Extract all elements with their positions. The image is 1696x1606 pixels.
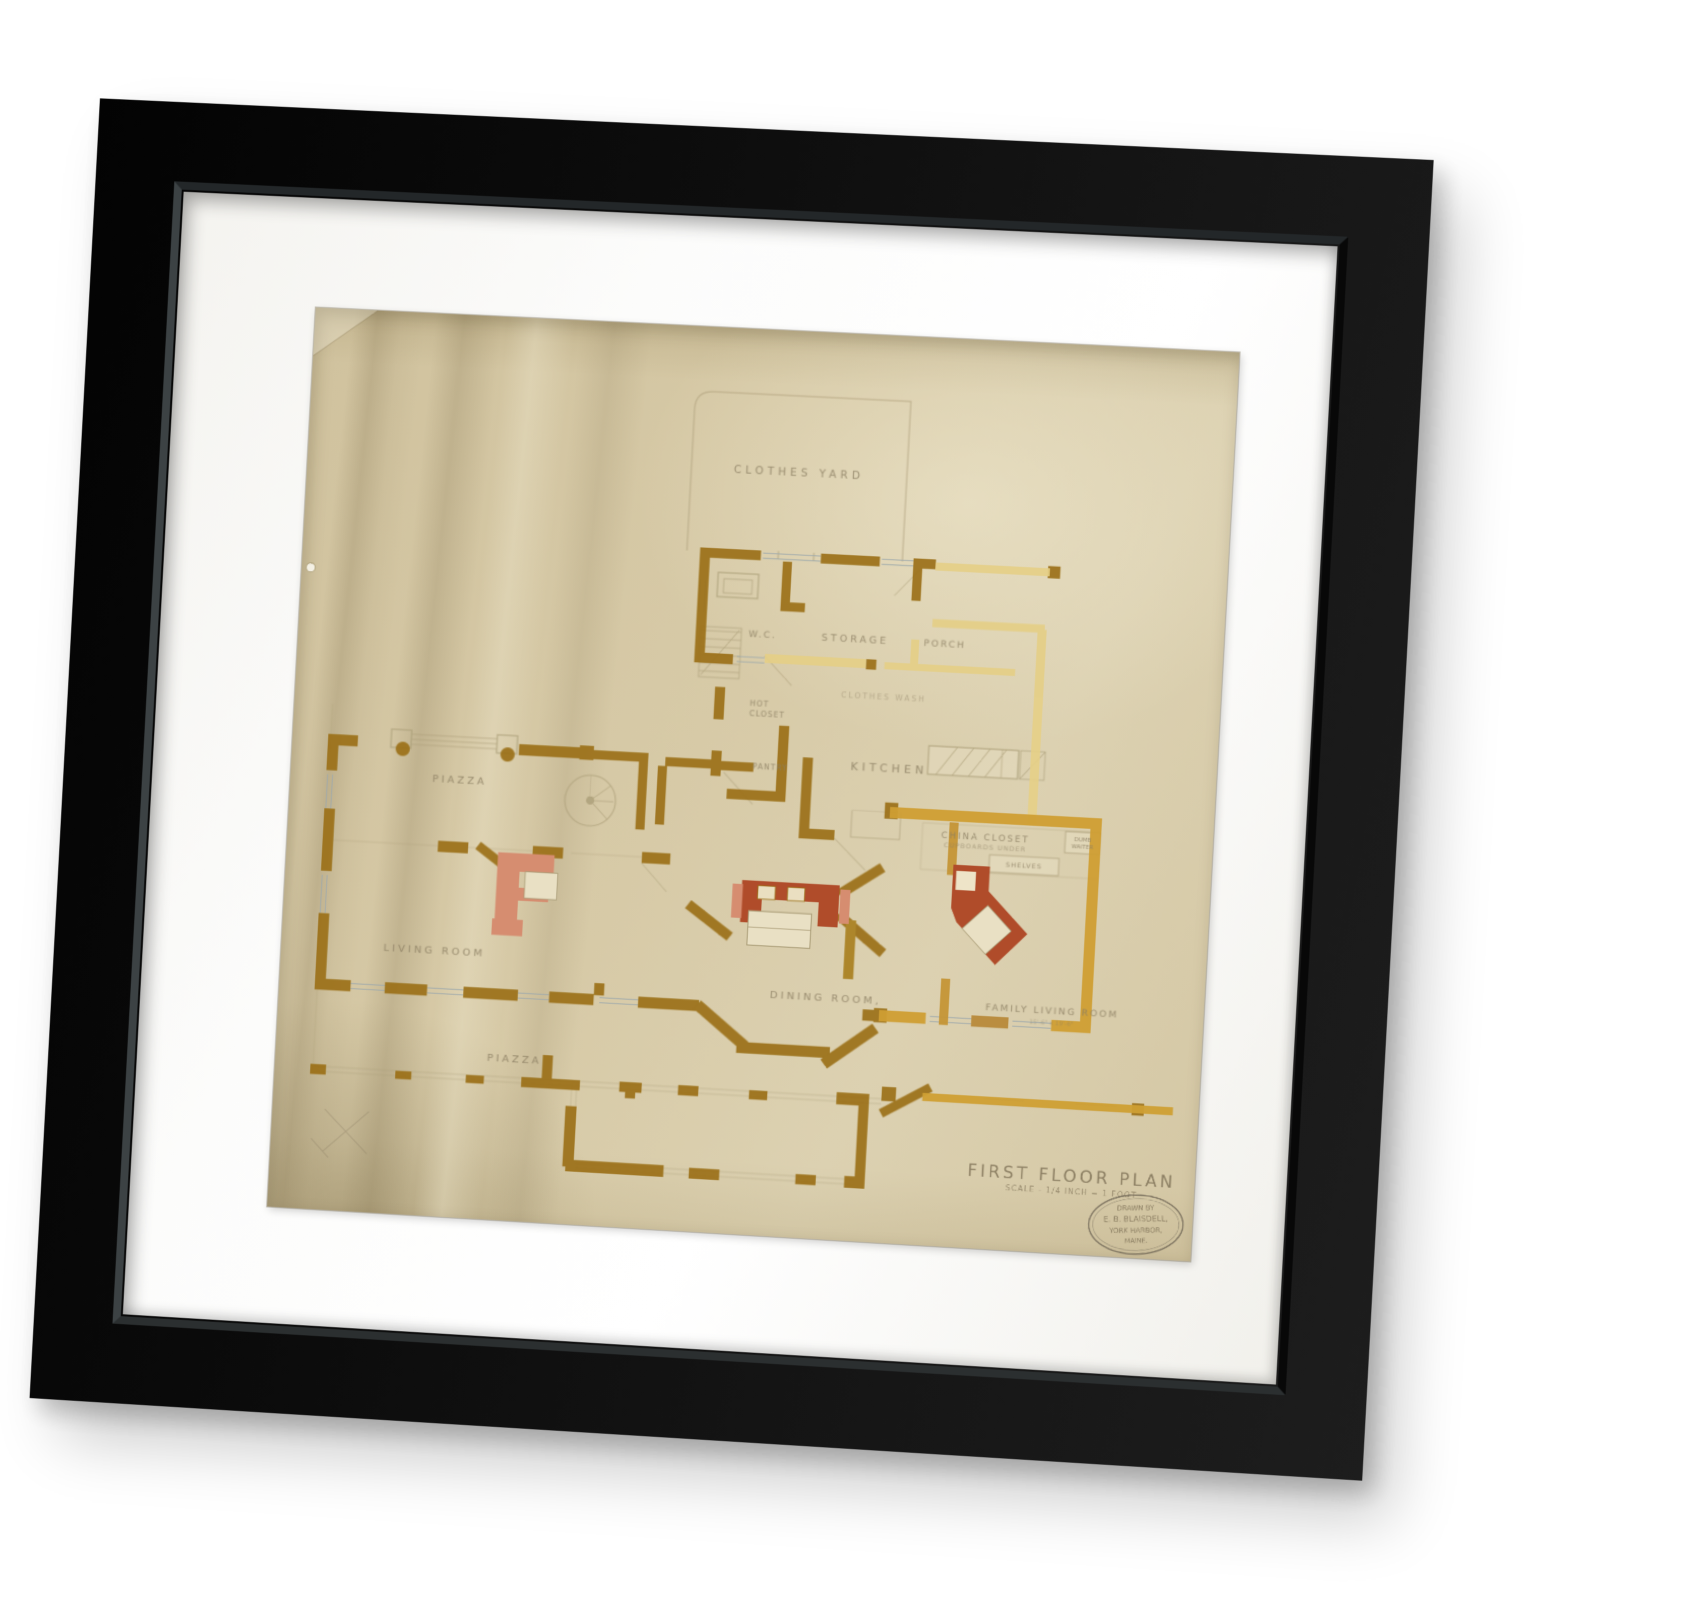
wc-fixture xyxy=(717,572,759,598)
label-wc: W.C. xyxy=(748,630,777,641)
label-piazza-bottom: PIAZZA xyxy=(487,1053,542,1067)
pencil-x-mark xyxy=(310,1108,369,1160)
label-clothes-yard: CLOTHES YARD xyxy=(734,464,865,483)
label-dumb-waiter-2: WAITER xyxy=(1071,844,1093,851)
mat-board: CLOTHES YARD W.C. STORAGE PORCH CLOTHES … xyxy=(123,192,1338,1385)
label-porch: PORCH xyxy=(923,639,966,651)
pin-hole xyxy=(306,563,316,573)
walls-pale-yellow xyxy=(756,554,1050,825)
label-piazza-left: PIAZZA xyxy=(432,774,487,788)
architect-stamp: DRAWN BY E. B. BLAISDELL, YORK HARBOR, M… xyxy=(1088,1195,1183,1255)
label-storage: STORAGE xyxy=(821,633,889,648)
piazza-rails xyxy=(411,734,497,749)
piazza-column xyxy=(500,747,515,762)
stamp-line-3: YORK HARBOR, xyxy=(1108,1226,1162,1235)
stamp-line-4: MAINE. xyxy=(1124,1237,1147,1245)
label-living-room: LIVING ROOM xyxy=(383,943,485,960)
floor-plan-drawing: CLOTHES YARD W.C. STORAGE PORCH CLOTHES … xyxy=(267,308,1239,1262)
label-clothes-wash: CLOTHES WASH xyxy=(841,690,927,704)
label-dining-room: DINING ROOM, xyxy=(769,990,881,1007)
floor-plan-svg: CLOTHES YARD W.C. STORAGE PORCH CLOTHES … xyxy=(267,308,1239,1262)
range-box xyxy=(928,746,1019,779)
piazza-column xyxy=(395,741,410,756)
picture-frame: CLOTHES YARD W.C. STORAGE PORCH CLOTHES … xyxy=(30,98,1434,1480)
label-dumb-waiter-1: DUMB xyxy=(1074,837,1092,844)
thin-outlines xyxy=(305,374,1123,1198)
product-photo: CLOTHES YARD W.C. STORAGE PORCH CLOTHES … xyxy=(0,0,1696,1606)
label-hot-closet-2: CLOSET xyxy=(749,709,785,720)
label-hot-closet-1: HOT xyxy=(750,699,770,709)
label-pantry: PANTRY xyxy=(752,762,788,773)
stamp-line-1: DRAWN BY xyxy=(1117,1204,1155,1212)
label-kitchen: KITCHEN xyxy=(850,760,928,777)
stamp-line-2: E. B. BLAISDELL, xyxy=(1103,1214,1168,1224)
